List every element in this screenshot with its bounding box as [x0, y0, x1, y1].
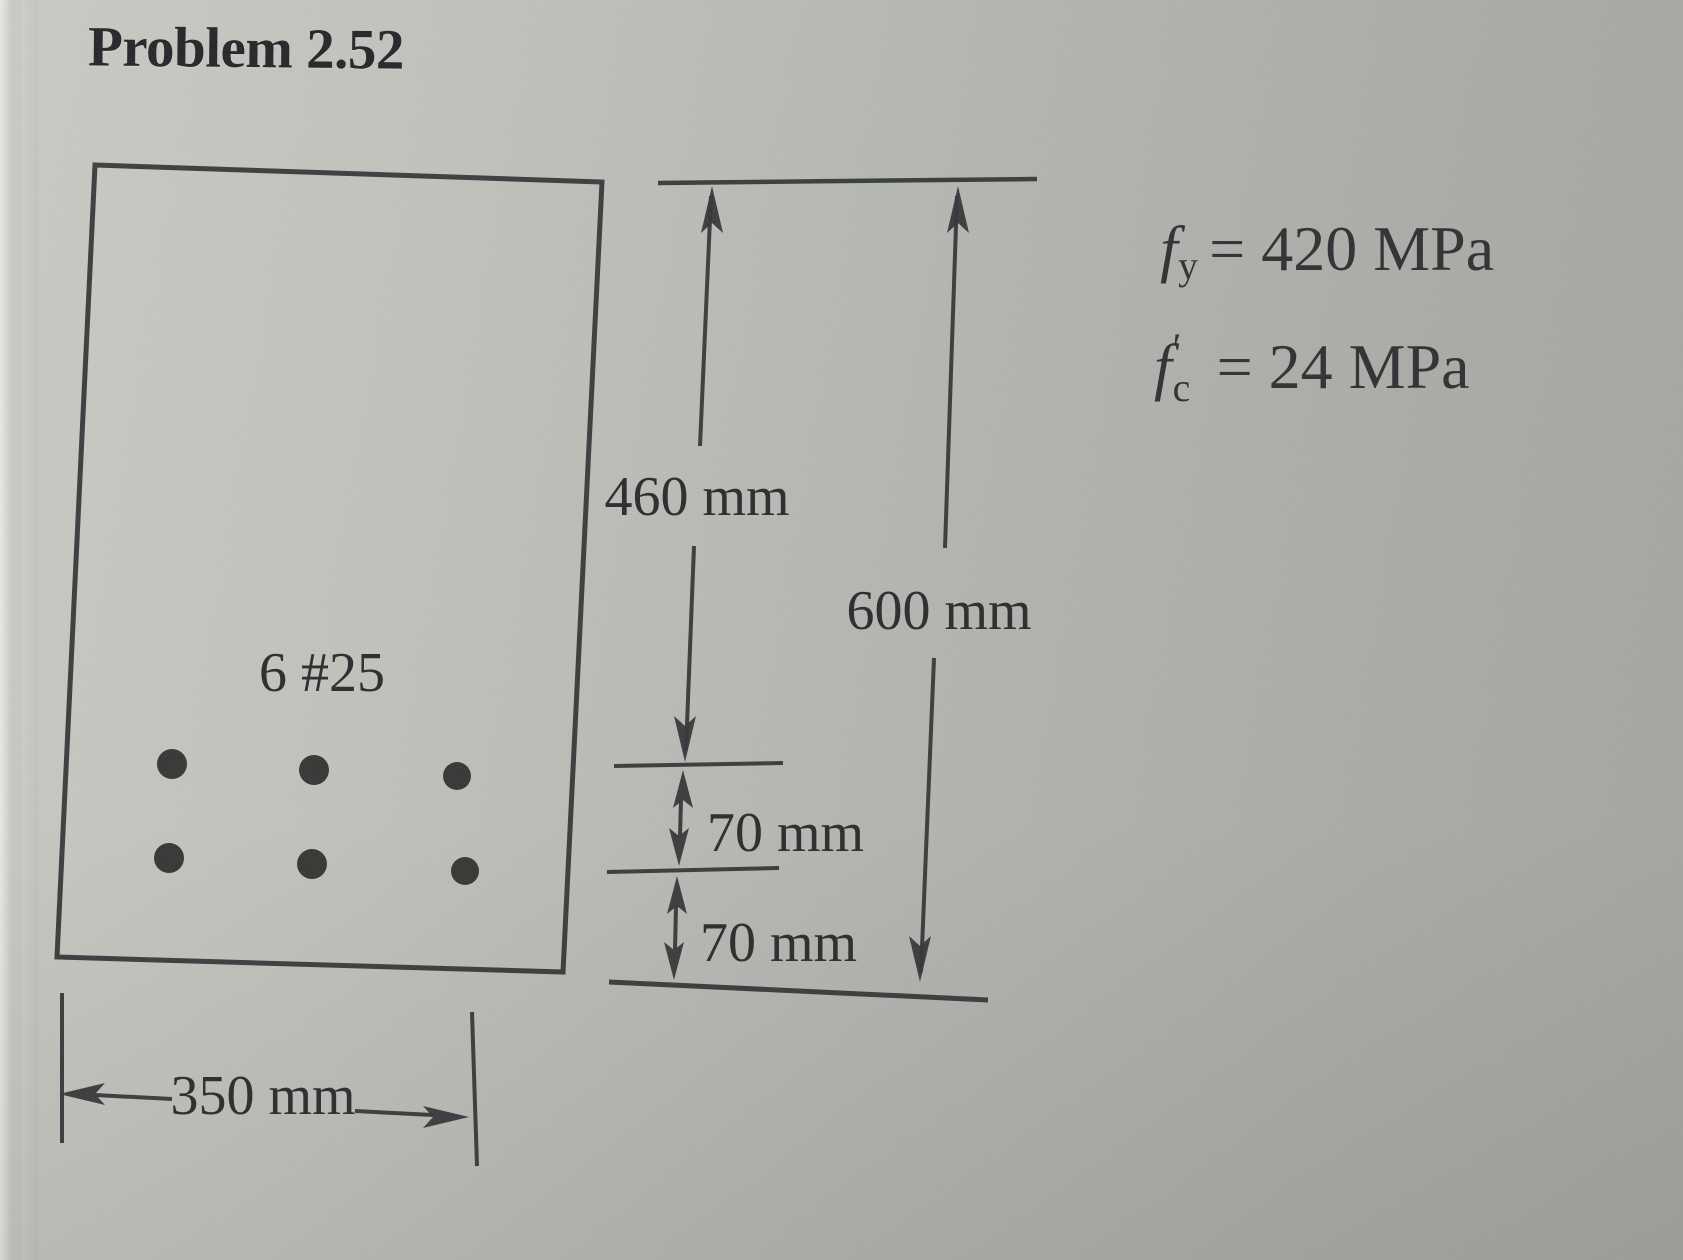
rebar-dots	[154, 749, 479, 885]
bar-layer-tick-line	[614, 763, 783, 766]
arrowhead-460-up	[701, 186, 723, 233]
arrowhead-600-up	[947, 186, 969, 233]
fc-symbol: f	[1154, 331, 1172, 402]
bottom-layer-tick-line	[607, 868, 779, 872]
arrowhead-70a-up	[673, 770, 693, 808]
rebar-dot	[297, 849, 327, 879]
arrowhead-350-right	[423, 1106, 469, 1128]
dim-70b-label: 70 mm	[700, 912, 857, 974]
equation-fc: f′c= 24 MPa	[1154, 330, 1470, 404]
dim-460-line-upper	[700, 196, 711, 446]
rebar-dot	[443, 762, 471, 790]
fy-symbol: f	[1160, 213, 1178, 284]
dim-350-line-left	[95, 1095, 172, 1099]
fy-value: = 420 MPa	[1209, 213, 1494, 284]
dim-460-label: 460 mm	[604, 466, 789, 528]
textbook-page: Problem 2.52	[0, 0, 1683, 1260]
beam-outline	[57, 165, 602, 972]
dim-70a-label: 70 mm	[707, 802, 864, 864]
top-extension-line	[658, 179, 1037, 183]
dim-600-line-upper	[945, 196, 957, 548]
rebar-dot	[157, 749, 187, 779]
dim-600-line-lower	[921, 658, 934, 972]
width-tick-right	[472, 1012, 477, 1166]
beam-section-diagram: 6 #25 460 mm 600 mm 70 mm 70 mm 350 mm	[0, 0, 1683, 1260]
dim-600-label: 600 mm	[846, 580, 1031, 642]
equation-fy: fy= 420 MPa	[1160, 212, 1494, 286]
fc-subscript: c	[1173, 365, 1191, 411]
section-label: 6 #25	[259, 642, 385, 704]
fc-prime-subscript-stack: ′c	[1172, 382, 1205, 388]
dim-70b-shaft	[675, 906, 676, 950]
dim-70a-shaft	[680, 800, 681, 836]
rebar-dot	[451, 857, 479, 885]
arrowhead-600-down	[909, 936, 931, 982]
bottom-extension-line	[609, 982, 988, 1000]
rebar-dot	[299, 755, 329, 785]
rebar-dot	[154, 843, 184, 873]
fy-subscript: y	[1178, 244, 1198, 288]
dim-350-line-right	[355, 1111, 433, 1115]
arrowhead-460-down	[674, 716, 696, 762]
fc-value: = 24 MPa	[1217, 331, 1470, 402]
dim-350-label: 350 mm	[170, 1065, 355, 1127]
